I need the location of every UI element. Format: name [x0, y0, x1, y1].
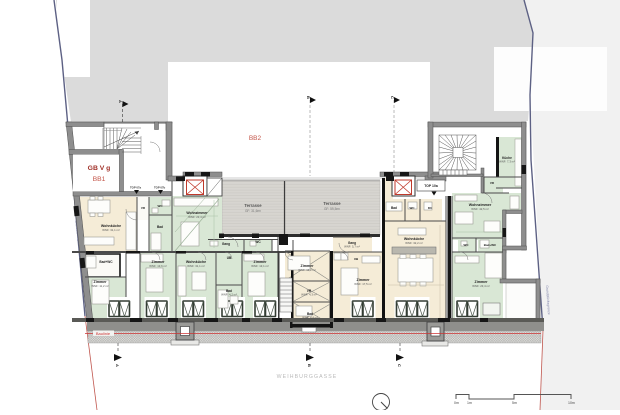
- svg-text:WNF: 31,1 m²: WNF: 31,1 m²: [187, 264, 204, 268]
- svg-text:B: B: [306, 96, 311, 99]
- svg-text:WNF: 5,7 m²: WNF: 5,7 m²: [344, 245, 360, 249]
- svg-text:Bad: Bad: [157, 225, 163, 229]
- svg-text:C: C: [397, 364, 402, 367]
- svg-text:B: B: [307, 364, 312, 367]
- svg-text:DU: DU: [428, 206, 432, 210]
- svg-text:UB: UB: [227, 256, 232, 260]
- svg-text:WNF: 32,2 m²: WNF: 32,2 m²: [405, 241, 422, 245]
- svg-text:5m: 5m: [512, 401, 517, 405]
- svg-text:WNF: 4,3 m²: WNF: 4,3 m²: [301, 293, 317, 297]
- svg-text:C: C: [390, 96, 395, 99]
- svg-text:WC: WC: [255, 240, 261, 244]
- svg-text:BB1: BB1: [93, 176, 106, 183]
- svg-text:WNF: 42,5 m²: WNF: 42,5 m²: [471, 207, 488, 211]
- svg-text:Bad+WC: Bad+WC: [484, 243, 497, 247]
- svg-text:WNF: 23,4 m²: WNF: 23,4 m²: [188, 215, 205, 219]
- svg-text:GF: 31,6m²: GF: 31,6m²: [245, 209, 261, 213]
- svg-text:WNF: 23,4 m²: WNF: 23,4 m²: [472, 284, 489, 288]
- svg-text:WNF: 4,4 m²: WNF: 4,4 m²: [302, 316, 318, 320]
- svg-text:GB V g: GB V g: [88, 165, 111, 172]
- svg-text:A: A: [118, 100, 123, 103]
- svg-text:Bad+WC: Bad+WC: [99, 260, 113, 264]
- svg-text:WC: WC: [158, 204, 164, 208]
- svg-text:Bad: Bad: [391, 206, 397, 210]
- svg-text:Gang: Gang: [222, 242, 230, 246]
- svg-text:BB2: BB2: [249, 135, 262, 142]
- svg-text:Baulinie: Baulinie: [96, 331, 111, 336]
- svg-text:A: A: [115, 364, 120, 367]
- svg-text:WEIHBURGGASSE: WEIHBURGGASSE: [277, 374, 338, 380]
- svg-text:WNF: 4,2 m²: WNF: 4,2 m²: [221, 293, 237, 297]
- svg-text:WNF: 13,6 m²: WNF: 13,6 m²: [149, 264, 166, 268]
- svg-text:TOP 10a: TOP 10a: [424, 184, 438, 188]
- svg-text:WNF: 13,2 m²: WNF: 13,2 m²: [298, 268, 315, 272]
- svg-text:1m: 1m: [467, 401, 472, 405]
- svg-text:WNF: 11,2 m²: WNF: 11,2 m²: [91, 284, 108, 288]
- svg-text:Terrasse: Terrasse: [323, 201, 341, 206]
- svg-text:Terrasse: Terrasse: [244, 203, 262, 208]
- svg-text:WC: WC: [410, 206, 416, 210]
- svg-text:WNF: 31,1 m²: WNF: 31,1 m²: [102, 228, 119, 232]
- svg-text:WNF: 7,3 m²: WNF: 7,3 m²: [499, 160, 515, 164]
- svg-text:WNF: 17,5 m²: WNF: 17,5 m²: [354, 282, 371, 286]
- svg-text:GF: 59,5m²: GF: 59,5m²: [324, 207, 340, 211]
- svg-text:WNF: 13,1 m²: WNF: 13,1 m²: [251, 264, 268, 268]
- svg-text:0m: 0m: [454, 401, 459, 405]
- svg-text:WC: WC: [464, 243, 470, 247]
- svg-text:TOP 07a: TOP 07a: [130, 186, 142, 190]
- svg-text:TOP 07b: TOP 07b: [154, 186, 166, 190]
- svg-text:10m: 10m: [568, 401, 575, 405]
